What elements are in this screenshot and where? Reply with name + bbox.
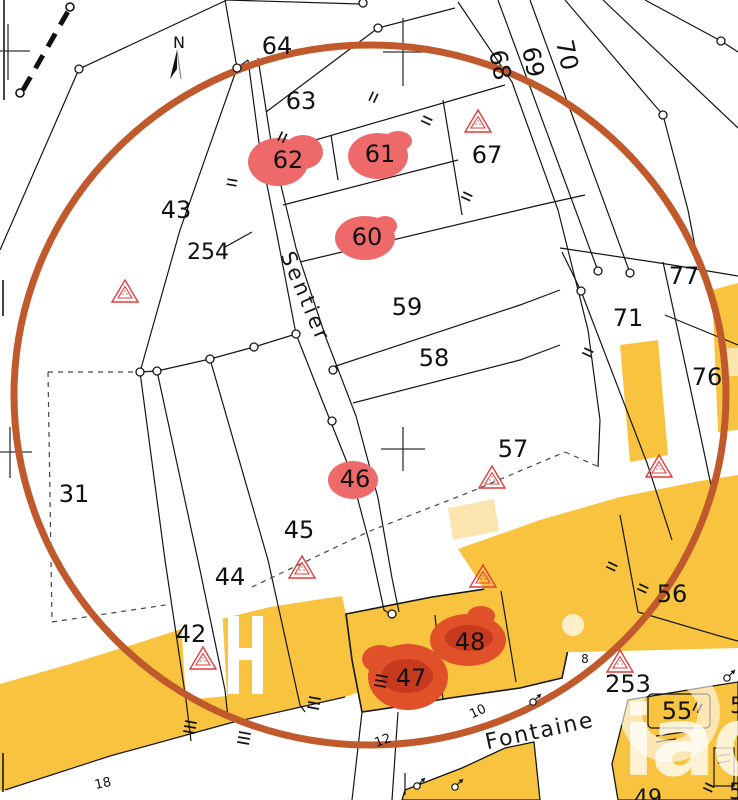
commune-boundary [16,3,74,97]
parcel-label-45: 45 [284,518,315,542]
address-label-8: 8 [581,653,589,665]
parcel-label-partial-49: 49 [634,788,662,800]
parcel-label-63: 63 [286,89,317,113]
north-label: N [173,35,185,51]
parcel-label-76: 76 [692,365,723,389]
parcel-label-44: 44 [215,565,246,589]
parcel-label-67: 67 [472,143,503,167]
parcel-label-partial-5a: 5 [730,696,738,718]
parcel-label-60: 60 [352,225,383,249]
parcel-label-59: 59 [392,295,423,319]
parcel-label-partial-5b: 5 [729,782,738,800]
parcel-label-56: 56 [657,582,688,606]
cadastral-map: iad 64 63 62 61 67 68 69 70 43 254 60 59… [0,0,738,800]
parcel-label-68: 68 [485,48,515,83]
address-label-18: 18 [94,776,113,792]
north-arrow-icon [170,50,181,79]
parcel-label-48: 48 [455,630,486,654]
parcel-label-254: 254 [187,242,229,264]
parcel-label-47: 47 [396,666,427,690]
parcel-label-70: 70 [552,38,582,73]
parcel-label-55: 55 [662,699,693,723]
parcel-label-61: 61 [365,142,396,166]
parcel-label-71: 71 [613,306,644,330]
parcel-label-43: 43 [161,198,192,222]
parcel-label-64: 64 [262,34,293,58]
parcel-label-69: 69 [518,45,548,80]
parcel-label-77: 77 [669,264,700,288]
parcel-label-46: 46 [340,467,371,491]
parcel-label-57: 57 [498,437,529,461]
parcel-label-31: 31 [59,482,90,506]
parcel-label-253: 253 [605,672,651,696]
parcel-label-42: 42 [176,622,207,646]
parcel-label-58: 58 [419,346,450,370]
parcel-label-62: 62 [273,148,304,172]
